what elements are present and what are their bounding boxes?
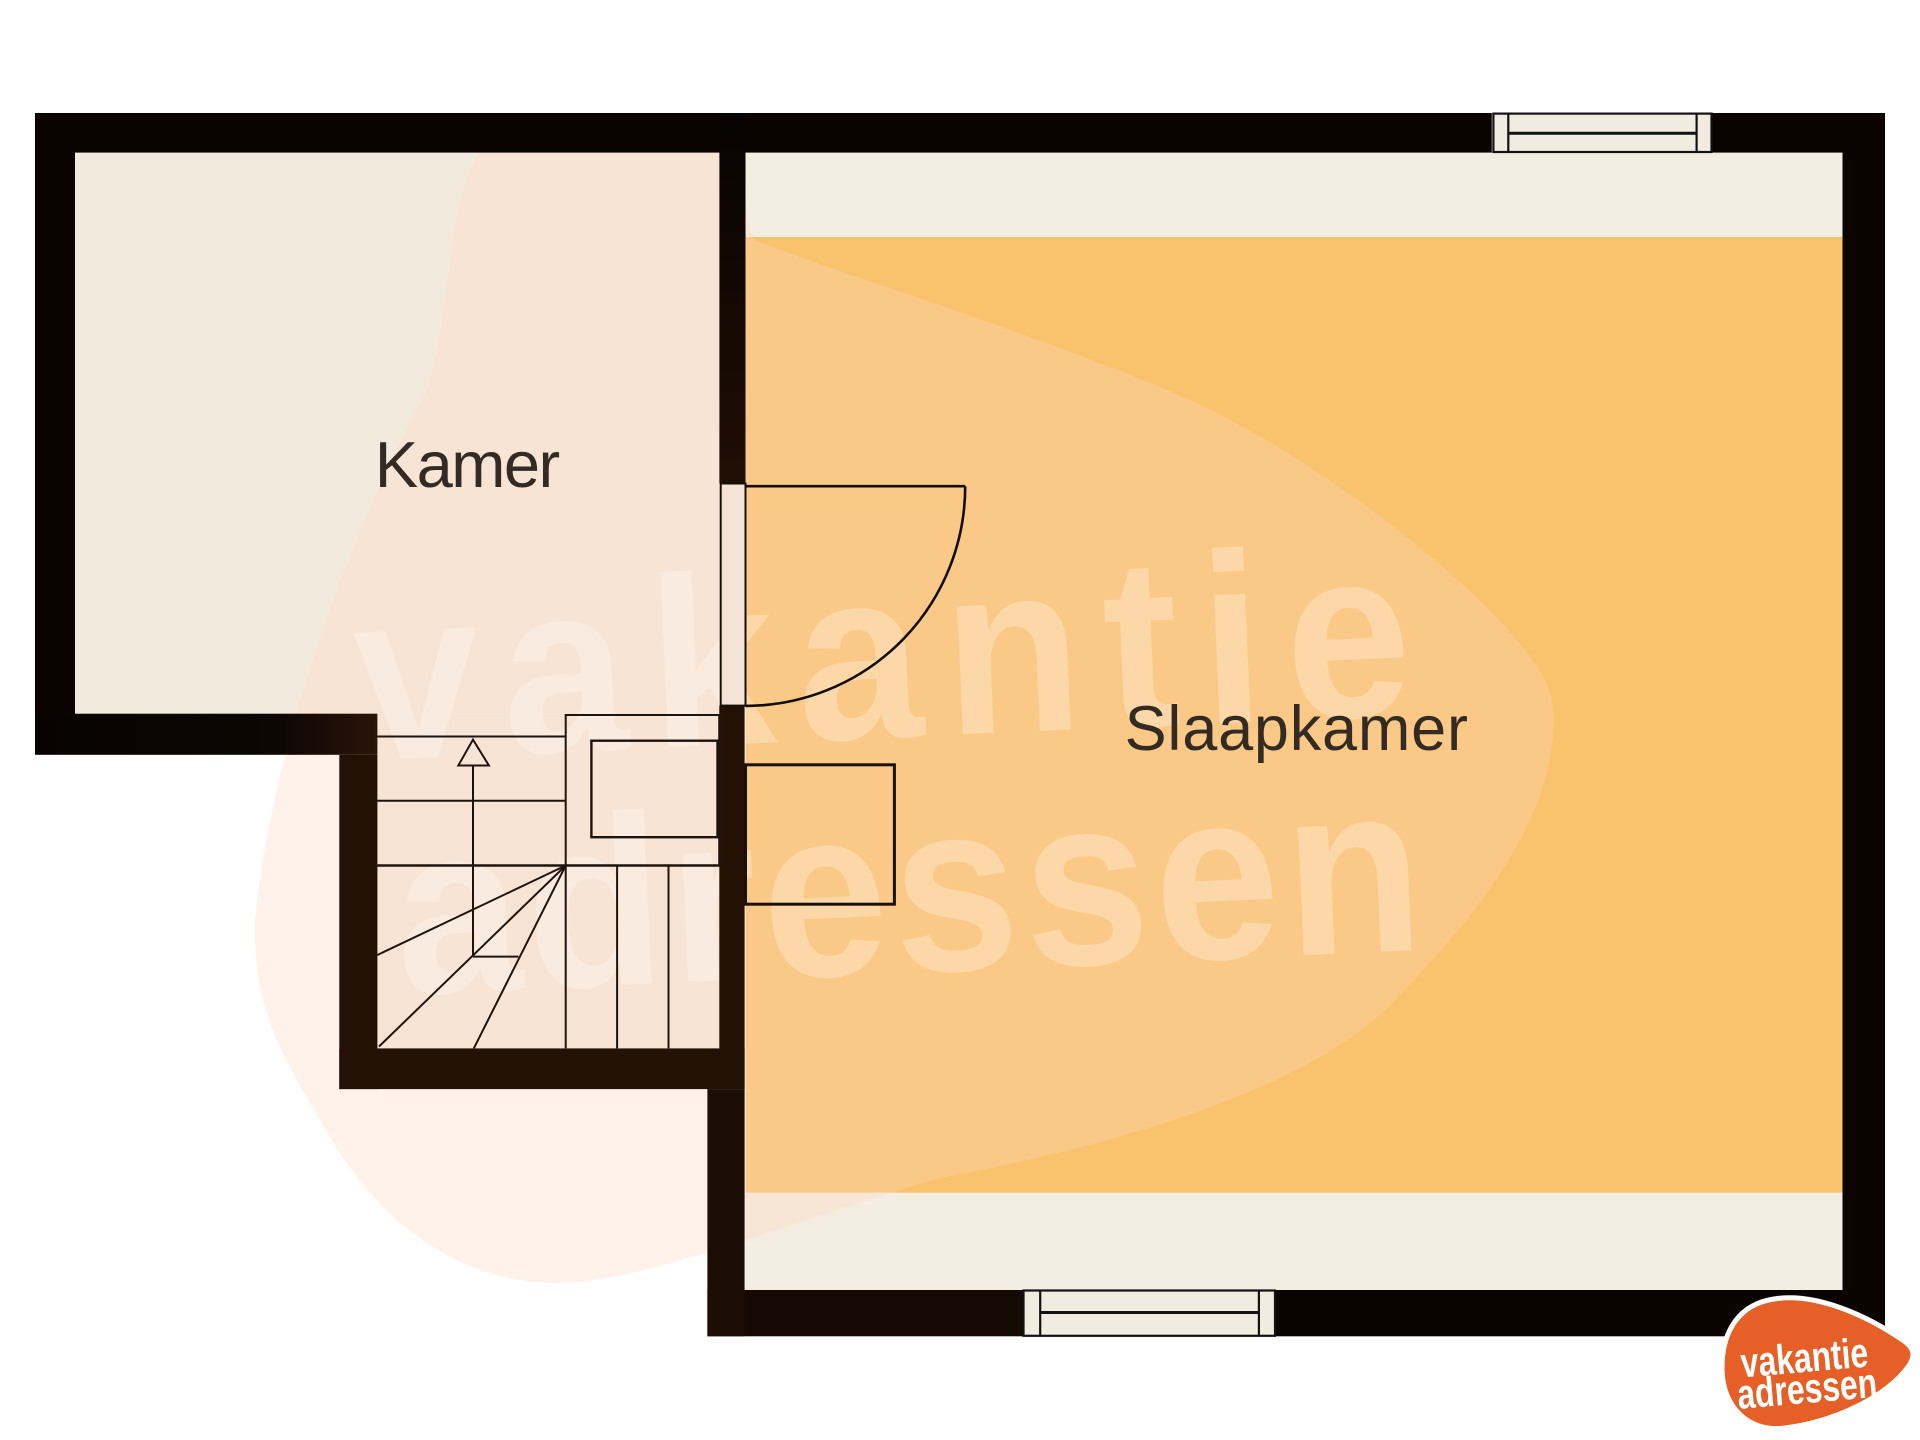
svg-text:adressen: adressen bbox=[389, 730, 1433, 1046]
svg-text:Slaapkamer: Slaapkamer bbox=[1125, 694, 1469, 764]
svg-text:Kamer: Kamer bbox=[375, 428, 560, 501]
